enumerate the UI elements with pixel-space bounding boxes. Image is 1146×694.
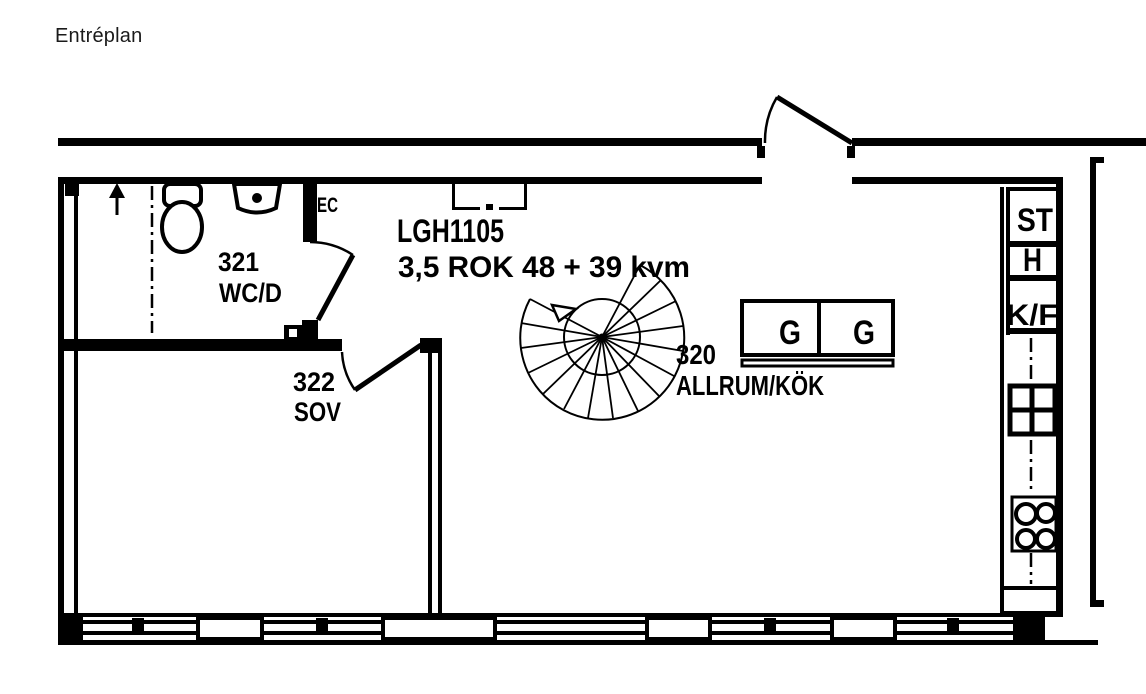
wall-pier — [198, 618, 262, 639]
entry-arrow-head — [109, 183, 125, 198]
band-corner-right — [1013, 613, 1045, 645]
wall-pier — [383, 618, 495, 639]
niche-bottom-left — [452, 207, 480, 210]
room-number-wc: 321 — [218, 247, 259, 277]
entry-arrow-icon — [109, 183, 125, 215]
wardrobe-label-left: G — [779, 314, 801, 352]
ec-label: EC — [317, 194, 338, 217]
toilet-bowl — [162, 202, 202, 252]
neighbor-stub-bottom — [1090, 600, 1104, 607]
kitchen-sink-icon — [1010, 386, 1055, 434]
stove-burner — [1016, 504, 1036, 524]
wc-pillar-core — [289, 329, 297, 337]
wall-sov-right-b — [438, 353, 442, 615]
stove-icon — [1012, 497, 1056, 551]
sov-door-swing-arc — [342, 352, 355, 390]
wall-pier — [647, 618, 710, 639]
room-name-wc: WC/D — [219, 278, 282, 308]
niche-left — [452, 184, 455, 210]
stair-center-post — [599, 334, 606, 341]
closet-label-st: ST — [1017, 202, 1053, 238]
room-name-sov: SOV — [294, 397, 341, 427]
wc-door-pedestal — [302, 320, 318, 340]
apartment-spec-label: 3,5 ROK 48 + 39 kvm — [398, 251, 690, 284]
sill-post — [947, 618, 959, 633]
sill-post — [316, 618, 328, 633]
room-number-sov: 322 — [293, 367, 335, 397]
kitchen-box-top — [1006, 187, 1056, 191]
sov-door-stub — [420, 338, 442, 353]
wall-wc-sov — [62, 339, 342, 351]
wall-left-outer — [58, 177, 64, 645]
apartment-id-label: LGH1105 — [397, 213, 504, 249]
sov-door-leaf — [355, 345, 421, 390]
niche-right — [524, 184, 527, 210]
sill-post — [132, 618, 144, 633]
wall-wc-right — [303, 184, 317, 242]
entry-door-swing-arc — [765, 97, 777, 143]
wardrobe-label-right: G — [853, 314, 875, 352]
bottom-window-band — [58, 613, 1098, 645]
wall-sov-right-a — [428, 353, 432, 615]
floor-plan-page: Entréplan — [0, 0, 1146, 694]
room-number-allrum: 320 — [676, 339, 716, 370]
sill — [495, 620, 647, 624]
wall-top-outer-right — [852, 138, 1146, 146]
closet-label-h: H — [1023, 242, 1042, 278]
washbasin-icon — [234, 184, 280, 213]
stove-burner — [1037, 504, 1055, 522]
niche-dot — [486, 204, 493, 210]
wc-door-leaf — [318, 255, 353, 320]
wardrobe-front-rail — [742, 360, 893, 366]
entry-door-leaf — [777, 97, 852, 143]
kitchen-sep-bottom — [1004, 586, 1056, 590]
room-name-allrum: ALLRUM/KÖK — [676, 370, 824, 401]
entry-frame-tick — [65, 184, 79, 196]
washbasin-drain — [252, 193, 262, 203]
wall-top-inner-right — [852, 177, 1063, 184]
toilet-icon — [162, 184, 202, 252]
wall-kitchen-left — [1000, 187, 1004, 617]
wall-neighbor — [1090, 158, 1096, 607]
niche-bottom-right — [499, 207, 527, 210]
walls — [58, 138, 1146, 645]
stair-up-arrow — [552, 305, 576, 321]
sill-post — [764, 618, 776, 633]
wall-pier — [832, 618, 895, 639]
top-wall-niche — [452, 184, 527, 210]
jamb-tick-right — [847, 146, 855, 158]
fridge-freezer-label-kf: K/F — [1006, 299, 1058, 332]
floor-plan-canvas: LGH1105 3,5 ROK 48 + 39 kvm 321 WC/D 322… — [0, 0, 1146, 694]
jamb-tick-left — [757, 146, 765, 158]
stove-burner — [1017, 530, 1035, 548]
stair-treads — [521, 265, 683, 418]
spiral-stair-icon — [520, 265, 684, 420]
wall-left-inner — [74, 184, 78, 613]
sill — [495, 631, 647, 635]
band-corner-left — [58, 613, 83, 645]
wall-top-outer-left — [58, 138, 762, 146]
stove-burner — [1037, 530, 1055, 548]
wc-door-swing-arc — [310, 242, 353, 255]
